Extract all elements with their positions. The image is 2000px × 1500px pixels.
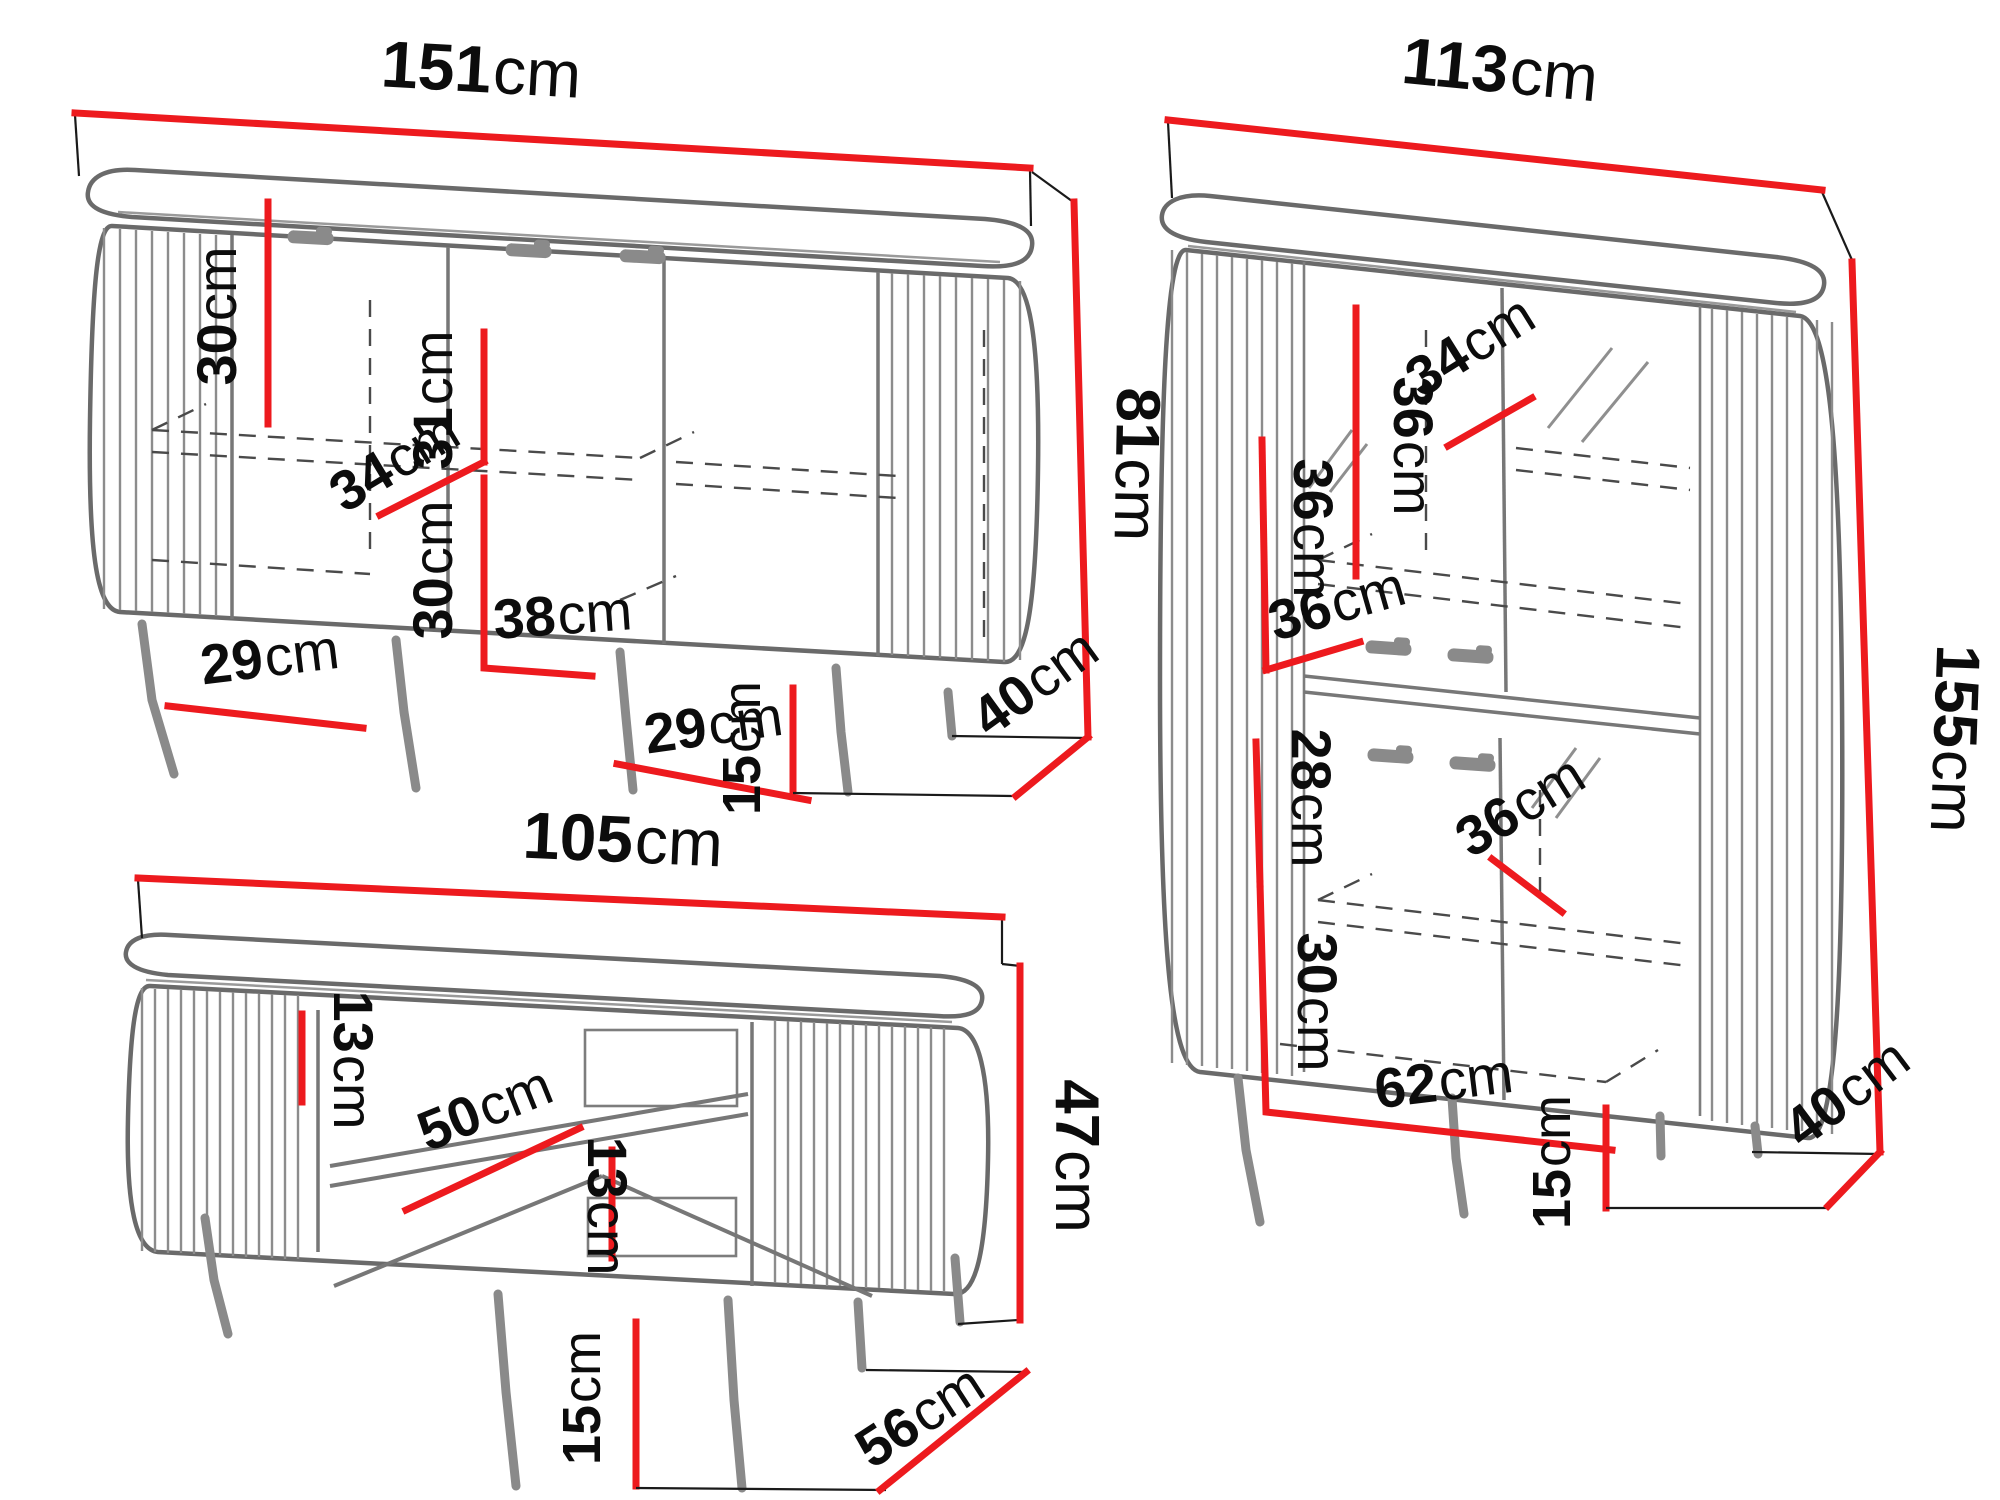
dim-table-leg-height: 15cm	[552, 1322, 886, 1490]
dim-line	[75, 113, 1030, 168]
display-cabinet: 113cm 36cm 34cm 36cm 36cm 28cm 30cm 36c	[1160, 23, 1992, 1229]
dim-label: 15cm	[1522, 1095, 1582, 1229]
dim-sideboard-inner-width-center: 38cm	[491, 578, 634, 651]
dim-label-sideboard-width: 151cm	[379, 26, 583, 111]
furniture-dimension-diagram: 151cm 30cm 31cm 34cm 30cm 38cm 29cm 29cm	[0, 0, 2000, 1500]
dim-label: 30cm	[1286, 933, 1349, 1072]
dim-table-niche-height-bottom: 13cm	[576, 1137, 639, 1276]
dim-label-table-width: 105cm	[521, 798, 724, 881]
coffee-table: 105cm 13cm 50cm 13cm 15cm 56cm 47c	[126, 798, 1111, 1490]
dim-label: 15cm	[712, 681, 772, 815]
dim-label: 28cm	[1280, 729, 1343, 868]
dim-label: 15cm	[552, 1331, 612, 1465]
dim-label: 13cm	[576, 1137, 639, 1276]
dim-label: 38cm	[491, 578, 634, 651]
dim-label: 29cm	[197, 617, 343, 696]
dim-label: 155cm	[1917, 644, 1993, 834]
dim-label: 13cm	[322, 991, 385, 1130]
dim-label: 47cm	[1042, 1079, 1111, 1233]
dim-label: 30cm	[185, 247, 248, 386]
dim-sideboard-inner-width-left: 29cm	[168, 617, 363, 728]
diagram-canvas: 151cm 30cm 31cm 34cm 30cm 38cm 29cm 29cm	[0, 0, 2000, 1500]
dim-table-depth: 56cm	[844, 1351, 1026, 1490]
dim-label-cabinet-width: 113cm	[1399, 23, 1602, 115]
dim-cabinet-height: 155cm	[1852, 262, 1992, 1152]
dim-label: 30cm	[401, 501, 464, 640]
sideboard: 151cm 30cm 31cm 34cm 30cm 38cm 29cm 29cm	[75, 26, 1172, 815]
